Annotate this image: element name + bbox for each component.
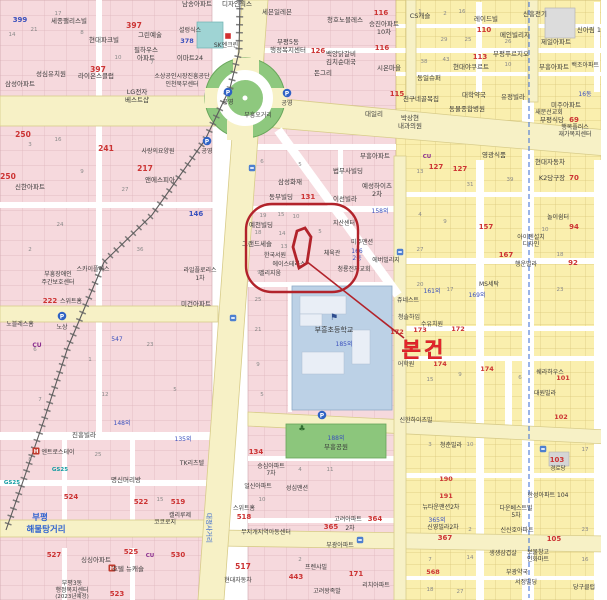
map-label: 524 <box>64 493 79 501</box>
map-label: 신신호아파트 <box>500 526 534 534</box>
map-label: 공영 <box>222 98 233 106</box>
map-label: 동일슈퍼 <box>417 73 441 82</box>
map-label: 부흥오거리 <box>244 111 272 119</box>
bus-stop-icon-window <box>250 167 254 169</box>
map-label: 105 <box>547 535 562 543</box>
map-label: 이선빌라 <box>333 194 357 203</box>
map-label: 38 <box>421 59 428 65</box>
map-label: 현대파크빌 <box>89 35 119 44</box>
map-label: 프렌샤빌 <box>305 563 327 571</box>
map-label: 보물창고 <box>527 548 550 556</box>
map-label: 6 <box>260 159 264 165</box>
map-label: 126 <box>311 47 326 55</box>
map-label: 1 <box>88 357 92 363</box>
map-label: 19 <box>260 213 267 219</box>
map-label: 250 <box>15 130 31 139</box>
map-label: 217 <box>137 164 153 173</box>
map-label: CU <box>146 553 155 559</box>
map-label: 공영 <box>201 147 212 155</box>
map-label: 미건아파트 <box>181 299 211 308</box>
map-label: 167 <box>499 251 514 259</box>
map-label: K2당구장 <box>539 173 565 182</box>
map-label: 5 <box>173 387 177 393</box>
map-label: 18 <box>557 252 564 258</box>
map-label: 3 <box>428 442 432 448</box>
map-label: 지산센터 <box>333 219 355 227</box>
map-label: 디자인 <box>523 240 540 248</box>
map-label: 16 <box>55 137 62 143</box>
map-label: 443 <box>289 573 304 581</box>
map-label: 518 <box>237 513 252 521</box>
map-label: MS세탁 <box>479 280 500 288</box>
map-label: 13 <box>281 244 288 250</box>
parking-icon-letter: P <box>226 89 231 96</box>
map-label: 남송아파트 <box>182 0 212 8</box>
map-label: 17 <box>582 447 589 453</box>
map-label: 한국서원 <box>264 251 286 259</box>
map-label: 소상공인시장진흥공단 <box>154 72 210 80</box>
map-label: 39 <box>507 177 514 183</box>
map-label: 부평 <box>32 512 48 523</box>
map-label: 110 <box>477 26 492 34</box>
parking-icon-letter: P <box>60 313 65 320</box>
map-label: 15 <box>157 497 164 503</box>
map-label: 청룡전자교회 <box>337 265 370 273</box>
map-label: 벨리지움 <box>259 269 282 277</box>
map-label: 7 <box>150 60 154 66</box>
map-label: 36 <box>137 247 144 253</box>
map-label: 29 <box>441 37 448 43</box>
map-label: GS25 <box>4 480 20 486</box>
map-label: 17 <box>55 11 62 17</box>
map-label: 16 <box>582 557 589 563</box>
map-label: 아이젠설치 <box>517 233 545 241</box>
map-label: 527 <box>47 551 62 559</box>
map-label: 노블레스홈 <box>6 320 34 328</box>
map-label: 4 <box>298 467 302 473</box>
map-label: 부평푸르지오 <box>493 49 529 58</box>
map-label: 568 <box>426 568 440 576</box>
map-label: 체육관 <box>324 249 341 257</box>
map-label: 메인빌리지 <box>500 30 530 39</box>
map-label: 14 <box>9 32 16 38</box>
map-label: 제일아파트 <box>541 37 571 46</box>
map-label: 행운빌라 <box>515 260 538 268</box>
map-label: 세븐일레븐 <box>262 7 292 16</box>
map-label: 378 <box>180 37 194 45</box>
map-label: 법무사빌딩 <box>333 166 363 175</box>
map-label: 8 <box>80 30 84 36</box>
map-label: ♣ <box>298 424 305 433</box>
map-label: 399 <box>13 16 28 24</box>
map-label: 15 <box>278 212 285 218</box>
map-label: 청춘빌라 <box>440 441 463 449</box>
map-label: 코코로지 <box>154 518 176 526</box>
map-label: 25 <box>95 452 102 458</box>
map-label: 신한아파트 <box>15 182 45 191</box>
map-label: 행복플러스 <box>561 123 589 131</box>
map-label: 삼성화재 <box>278 177 302 186</box>
map-label: 노상 <box>56 323 68 331</box>
map-label: 27 <box>457 589 464 595</box>
map-label: 12 <box>102 392 109 398</box>
map-label: 10차 <box>377 27 391 36</box>
map-label: 10 <box>115 55 122 61</box>
map-label: 17 <box>447 287 454 293</box>
map-label: 158외 <box>372 208 389 215</box>
map-label: 신한하이츠빌 <box>399 416 432 424</box>
map-label: 세종팰리스빌 <box>51 16 87 25</box>
map-label: 18 <box>255 230 262 236</box>
map-label: 7 <box>38 397 42 403</box>
map-label: 397 <box>90 65 106 74</box>
map-label: 174 <box>480 365 494 373</box>
map-label: 싱싱아파트 <box>81 555 111 564</box>
map-label: 173 <box>413 326 427 334</box>
map-label: 113 <box>473 53 488 61</box>
map-label: 부광아파트 <box>326 541 354 549</box>
map-label: 부흥초등학교 <box>315 325 354 334</box>
map-label: 16 <box>459 9 466 15</box>
map-label: 188외 <box>328 435 345 442</box>
map-label: 364 <box>368 515 383 523</box>
map-label: GS25 <box>52 467 68 473</box>
map-label: 20 <box>417 282 424 288</box>
map-label: 미주아파트 <box>551 100 581 109</box>
map-label: 앤에스피아 <box>145 175 175 184</box>
map-label: 공영 <box>281 99 292 107</box>
map-label: 8 <box>28 457 32 463</box>
map-label: 190 <box>439 475 453 483</box>
map-label: 6 <box>33 347 37 353</box>
map-label: 신흥전기 <box>523 9 547 18</box>
map-label: 당구클럽 <box>573 583 595 591</box>
map-label: 241 <box>98 144 114 153</box>
map-label: 9 <box>257 270 261 276</box>
map-label: 베스트샵 <box>125 95 149 104</box>
map-label: 리치아파트 <box>362 581 390 589</box>
map-label: 청솔하임 <box>398 313 420 321</box>
map-label: 예천빌딩 <box>249 220 273 229</box>
map-label: 2차 <box>345 524 355 532</box>
hotel-icon-letter: H <box>34 449 39 455</box>
map-label: 27 <box>122 187 129 193</box>
map-label: 레이드빌 <box>474 14 498 23</box>
map-label: 뉴타운맨션2차 <box>423 503 460 511</box>
map-label: 부흥아파트 <box>539 62 569 71</box>
map-label: 134 <box>249 448 264 456</box>
map-label: 10 <box>259 497 266 503</box>
map-label: 에버빌리지 <box>372 256 400 264</box>
map-label: 명신머리방 <box>111 475 141 484</box>
map-label: 2 <box>468 527 472 533</box>
map-label: 다운베스트빌 <box>499 504 532 512</box>
map-label: 367 <box>438 534 453 542</box>
map-label: 대일리 <box>365 109 383 118</box>
bus-stop-icon-window <box>541 448 545 450</box>
map-label: ⚑ <box>330 313 338 323</box>
map-label: 동물종합병원 <box>449 104 485 113</box>
map-label: 2차 <box>372 189 382 198</box>
map-label: 재가복지센터 <box>558 130 591 138</box>
map-label: 고려아파트 <box>334 515 362 523</box>
map-label: 18 <box>427 587 434 593</box>
map-canvas: PPPPPHH 세종팰리스빌399397그린예술현대파크빌필하우스아파트라이온스… <box>0 0 607 600</box>
map-label: 10 <box>293 214 300 220</box>
map-label: 백양닭갈비 <box>326 49 356 58</box>
map-label: 내과의원 <box>398 121 422 130</box>
map-label: 135외 <box>175 436 192 443</box>
map-label: 쥬네스트 <box>397 296 420 304</box>
map-label: 행정복지센터 <box>55 586 88 594</box>
map-label: 돈그리 <box>314 68 332 77</box>
map-label: 5 <box>260 392 264 398</box>
map-label: 필하우스 <box>134 45 158 54</box>
map-label: 157 <box>479 223 494 231</box>
map-label: 동부빌딩 <box>269 192 293 201</box>
map-label: 엔트로스테이 <box>41 448 74 456</box>
map-label: 영광식품 <box>482 150 506 159</box>
bus-stop-icon-window <box>231 317 235 319</box>
map-label: 일신아파트 <box>244 482 272 490</box>
map-label: 10 <box>505 62 512 68</box>
fuel-station-icon <box>225 33 231 39</box>
map-label: 31 <box>467 182 474 188</box>
map-label: 517 <box>235 562 251 571</box>
map-label: 161외 <box>424 288 441 295</box>
map-label: 185외 <box>336 341 353 348</box>
map-label: 519 <box>171 498 186 506</box>
map-label: 24 <box>57 222 64 228</box>
map-label: 부흥아파트 <box>360 151 390 160</box>
map-label: 14 <box>467 555 474 561</box>
map-label: 25 <box>465 37 472 43</box>
map-label: 삼성아파트 <box>5 79 35 88</box>
map-label: 21 <box>255 327 262 333</box>
map-label: 6 <box>518 375 522 381</box>
jeil-apartment-building <box>545 8 575 38</box>
map-label: 530 <box>171 551 186 559</box>
map-label: 대학약국 <box>462 90 486 99</box>
map-label: 시온마을 <box>377 63 401 72</box>
map-label: 146 <box>189 210 204 218</box>
map-label: 25 <box>255 297 262 303</box>
map-label: 92 <box>568 259 578 267</box>
map-label: 23 <box>557 287 564 293</box>
map-label: 해물탕거리 <box>26 524 65 535</box>
map-label: 부평5동 <box>277 37 299 46</box>
map-label: 이마트24 <box>177 53 203 62</box>
map-label: 스위트홈 <box>60 297 83 305</box>
map-label: 5차 <box>511 511 521 519</box>
map-label: 성심맨션 <box>286 484 308 492</box>
map-label: 94 <box>569 223 579 231</box>
map-label: 라일플로리스 <box>183 266 217 274</box>
parking-icon-letter: P <box>205 138 210 145</box>
map-label: 부평3동 <box>62 579 83 587</box>
map-label: 9 <box>458 372 462 378</box>
map-label: 호텔 뉴캐슬 <box>112 564 144 573</box>
map-label: 신아림 16 <box>577 25 605 34</box>
map-label: 9 <box>443 219 447 225</box>
map-label: 13 <box>417 169 424 175</box>
map-label: 신영빌라2차 <box>427 523 459 531</box>
map-label: 승심아파트 <box>257 462 285 470</box>
map-label: 그린예술 <box>138 30 162 39</box>
map-label: 14 <box>279 231 286 237</box>
map-label: 1 <box>418 9 422 15</box>
map-label: 부평식당 <box>540 115 564 124</box>
bus-stop-icon-window <box>358 539 362 541</box>
map-label: 사랑의요양원 <box>141 147 174 155</box>
map-label: 10 <box>542 227 549 233</box>
map-label: 생생삼겹살 <box>489 549 517 557</box>
subject-property-label: 본건 <box>402 338 447 362</box>
map-label: 경로당 <box>550 465 565 472</box>
map-label: 169외 <box>469 292 486 299</box>
map-label: 23 <box>147 342 154 348</box>
map-label: 유정빌라 <box>501 92 525 101</box>
map-label: 43 <box>443 57 450 63</box>
map-label: 승진아파트 <box>369 19 399 28</box>
map-label: 172 <box>451 325 465 333</box>
map-label: 7 <box>428 557 432 563</box>
map-label: 1차 <box>195 274 205 282</box>
map-label: 새문선교회 <box>535 108 563 116</box>
map-label: TK리츠텔 <box>179 459 205 467</box>
map-label: 5 <box>298 162 302 168</box>
map-label: 69 <box>569 116 579 124</box>
map-label: 70 <box>569 174 579 182</box>
map-label: 191 <box>439 492 453 500</box>
map-label: 청호노블레스 <box>327 15 363 24</box>
map-label: 103 <box>550 456 565 464</box>
map-label: 131 <box>301 193 316 201</box>
map-label: 547 <box>111 336 123 343</box>
map-label: 222 <box>43 297 58 305</box>
map-label: 대정사거리 <box>205 513 214 543</box>
map-label: 친구네골목집 <box>403 94 439 103</box>
map-label: 525 <box>124 548 139 556</box>
map-label: 116 <box>374 9 389 17</box>
map-label: 놀이쉼터 <box>547 213 569 221</box>
map-label: 2 <box>443 11 447 17</box>
map-label: 현대야쿠르트 <box>453 62 489 71</box>
map-label: 스카이플레스 <box>76 265 110 273</box>
map-label: 102 <box>554 413 568 421</box>
map-label: 서정빌딩 <box>515 578 537 586</box>
map-label: 365외 <box>429 517 446 524</box>
map-label: 인천북부센터 <box>165 80 198 88</box>
map-label: 250 <box>0 172 16 181</box>
map-label: 101 <box>556 374 570 382</box>
map-label: 인화마트 <box>527 555 550 563</box>
map-label: 설렁식스 <box>179 26 202 34</box>
map-label: (2023년예정) <box>55 592 88 600</box>
map-label: 11 <box>327 467 334 473</box>
map-label: 26 <box>505 39 512 45</box>
map-label: 4 <box>418 212 422 218</box>
map-label: 7차 <box>266 469 276 477</box>
map-label: 522 <box>134 498 149 506</box>
map-label: 2 <box>298 557 302 563</box>
map-label: 148외 <box>114 420 131 427</box>
map-label: 현대자동차 <box>535 157 565 166</box>
map-label: 고려왕족발 <box>313 587 341 595</box>
map-label: 한성아파트 104 <box>528 491 569 499</box>
map-label: 진흥빌라 <box>72 430 96 439</box>
map-label: 397 <box>126 21 142 30</box>
map-label: 캘리루제 <box>169 511 191 519</box>
map-label: CU <box>423 154 432 160</box>
map-label: 10 <box>467 442 474 448</box>
map-label: SK엔크린 <box>214 41 238 49</box>
map-label: 대원빌라 <box>534 389 557 397</box>
map[interactable]: PPPPPHH 세종팰리스빌399397그린예술현대파크빌필하우스아파트라이온스… <box>0 0 607 600</box>
map-label: LG전자 <box>127 87 148 96</box>
map-label: 365 <box>324 523 339 531</box>
map-label: 127 <box>429 163 444 171</box>
school-block <box>292 286 392 410</box>
map-label: 부광약국 <box>506 568 529 576</box>
map-label: 스위트홈 <box>233 504 256 512</box>
parking-icon-letter: P <box>320 412 325 419</box>
map-edge-margin <box>601 0 607 600</box>
map-label: 23 <box>582 527 589 533</box>
map-label: 116 <box>375 44 390 52</box>
map-label: 9 <box>256 362 260 368</box>
map-label: 주간보호센터 <box>41 278 74 286</box>
map-label: 523 <box>110 590 125 598</box>
map-label: 3 <box>28 142 32 148</box>
map-label: 127 <box>453 165 468 173</box>
map-label: 무지개지역아동센터 <box>241 528 291 536</box>
map-label: 21 <box>31 27 38 33</box>
parking-icon-letter: P <box>285 90 290 97</box>
map-label: 27 <box>417 247 424 253</box>
map-label: 16동 <box>578 91 592 98</box>
map-label: 현대자동차 <box>224 576 252 584</box>
map-label: 9 <box>80 169 84 175</box>
map-label: 171 <box>349 570 364 578</box>
map-label: 5 <box>318 229 322 235</box>
map-label: 김치순대국 <box>326 57 356 66</box>
map-label: 부흥공원 <box>324 442 348 451</box>
map-label: 행정복지센터 <box>270 45 306 54</box>
map-label: 15 <box>427 377 434 383</box>
map-label: 박상현 <box>401 113 419 122</box>
map-label: 성심유치원 <box>36 69 66 78</box>
map-label: 미주맨션 <box>351 238 373 246</box>
map-label: 부흥장애인 <box>44 270 72 278</box>
map-label: 예성하이츠 <box>362 181 392 190</box>
map-label: 디자인웍스 <box>222 0 252 8</box>
map-label: 2 <box>28 247 32 253</box>
bus-stop-icon-window <box>398 251 402 253</box>
